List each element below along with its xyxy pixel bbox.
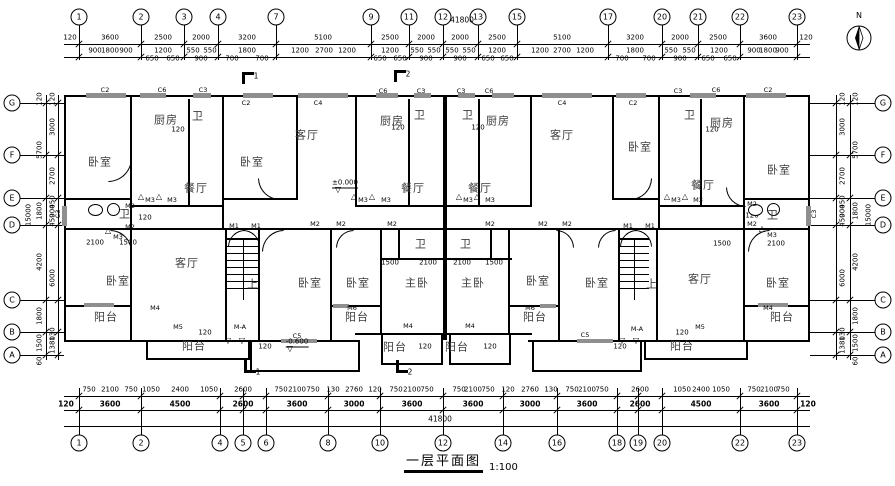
- dim-label: 2100: [578, 387, 596, 394]
- window: [540, 304, 556, 308]
- room-label: 餐厅: [184, 183, 208, 194]
- door-triangle-icon: ▽: [239, 337, 245, 345]
- dim-label: 120: [171, 127, 184, 134]
- room-label: 卫: [767, 210, 779, 221]
- section-mark-label: 2: [408, 368, 413, 376]
- axis-bubble: 10: [372, 435, 389, 452]
- axis-bubble: B: [875, 324, 892, 341]
- room-label: 卫: [415, 239, 427, 250]
- door-triangle-icon: △: [664, 193, 670, 201]
- dim-label: 5100: [553, 35, 571, 42]
- wall: [660, 205, 744, 207]
- dim-label: 900: [775, 48, 788, 55]
- dim-label: 550: [445, 48, 458, 55]
- window: [577, 339, 613, 343]
- stairs-rail: [634, 238, 635, 300]
- dim-label: 1800: [37, 202, 44, 220]
- dim-label: 120: [63, 35, 76, 42]
- dim-label: 2000: [451, 35, 469, 42]
- dim-label: 1800: [101, 48, 119, 55]
- dim-label: 1800: [238, 48, 256, 55]
- dim-label: 120: [138, 215, 151, 222]
- door-window-code: C2: [764, 87, 773, 94]
- door-window-code: M1: [645, 223, 655, 230]
- dim-label: 1800: [759, 48, 777, 55]
- dim-label: 900: [119, 48, 132, 55]
- dim-label: 120: [675, 330, 688, 337]
- dim-label: 750: [776, 387, 789, 394]
- dim-label: 2700: [840, 167, 847, 185]
- window: [243, 93, 273, 98]
- dim-label: 2000: [417, 35, 435, 42]
- dim-label: 120: [799, 35, 812, 42]
- door-window-code: M-A: [631, 326, 643, 333]
- dim-label: 120: [418, 344, 431, 351]
- door-window-code: M2: [747, 221, 757, 228]
- dim-label: 2500: [381, 35, 399, 42]
- axis-bubble: A: [4, 347, 21, 364]
- room-label: 主卧: [405, 278, 429, 289]
- wall: [380, 258, 445, 260]
- door-arc: [556, 230, 574, 248]
- dim-label: 2400: [692, 387, 710, 394]
- axis-bubble: 21: [690, 9, 707, 26]
- axis-bubble: 22: [732, 435, 749, 452]
- wall: [330, 230, 332, 340]
- dim-label: 130: [326, 387, 339, 394]
- dim-label: 1200: [488, 48, 506, 55]
- dim-label: 1050: [673, 387, 691, 394]
- window: [542, 93, 592, 98]
- dim-label: 1200: [710, 48, 728, 55]
- dim-label: 120: [198, 330, 211, 337]
- section-mark: [244, 360, 247, 372]
- north-label: N: [856, 11, 862, 20]
- dim-label: 2100: [101, 387, 119, 394]
- room-label: 阳台: [383, 342, 407, 353]
- section-mark: [396, 360, 399, 372]
- dim-label: 60: [37, 357, 44, 366]
- room-label: 卧室: [240, 157, 264, 168]
- dim-label: 1800: [853, 202, 860, 220]
- dim-label: 4500: [170, 400, 191, 408]
- door-window-code: C3: [457, 88, 466, 95]
- door-triangle-icon: ▽: [633, 337, 639, 345]
- door-window-code: C3: [811, 210, 818, 219]
- dim-label: 650: [723, 56, 736, 63]
- room-label: 卫: [460, 239, 472, 250]
- door-triangle-icon: △: [138, 193, 144, 201]
- door-window-code: M3: [693, 197, 703, 204]
- dim-line: [46, 95, 47, 360]
- dim-label: 2500: [709, 35, 727, 42]
- wall: [250, 340, 252, 372]
- dim-label: 750: [306, 387, 319, 394]
- wall: [380, 230, 382, 333]
- window: [492, 93, 514, 98]
- room-label: 卧室: [767, 165, 791, 176]
- door-window-code: M3: [381, 197, 391, 204]
- room-label: 阳台: [770, 312, 794, 323]
- dim-label: 550: [664, 48, 677, 55]
- door-window-code: M3: [671, 197, 681, 204]
- door-window-code: M3: [113, 234, 123, 241]
- door-arc: [258, 178, 280, 200]
- dim-label: 900: [453, 56, 466, 63]
- axis-bubble: F: [875, 147, 892, 164]
- wall: [358, 340, 360, 372]
- room-label: 餐厅: [401, 183, 425, 194]
- axis-bubble: 23: [789, 435, 806, 452]
- dim-label: 1800: [853, 307, 860, 325]
- dim-label: 120: [800, 400, 816, 408]
- dim-label: 2700: [315, 48, 333, 55]
- axis-bubble: 18: [609, 435, 626, 452]
- wall: [508, 230, 510, 333]
- dim-label: 3600: [402, 400, 423, 408]
- dim-label: 1200: [338, 48, 356, 55]
- door-window-code: M2: [310, 221, 320, 228]
- section-mark-label: 1: [256, 368, 261, 376]
- room-label: 厨房: [380, 116, 404, 127]
- wall: [509, 333, 511, 365]
- dim-label: 4500: [691, 400, 712, 408]
- room-label: 客厅: [295, 130, 319, 141]
- axis-bubble: 8: [320, 435, 337, 452]
- dim-label: 2760: [345, 387, 363, 394]
- wall: [64, 198, 132, 200]
- wall: [490, 230, 492, 258]
- dim-label: 120: [840, 92, 847, 105]
- wall: [644, 358, 748, 360]
- dim-label: 120: [501, 387, 514, 394]
- dim-label: 2000: [192, 35, 210, 42]
- door-arc: [726, 187, 746, 207]
- dim-label: 2600: [234, 387, 252, 394]
- door-window-code: C3: [674, 88, 683, 95]
- dim-label: 650: [393, 56, 406, 63]
- dim-label: 750: [420, 387, 433, 394]
- dim-label: 2100: [403, 387, 421, 394]
- wall: [222, 198, 298, 200]
- door-window-code: M2: [387, 221, 397, 228]
- drawing-scale: 1:100: [489, 462, 518, 473]
- door-window-code: M6: [525, 305, 535, 312]
- door-window-code: C3: [417, 88, 426, 95]
- door-window-code: C4: [558, 100, 567, 107]
- dim-label: 5100: [314, 35, 332, 42]
- room-label: 厨房: [486, 116, 510, 127]
- door-triangle-icon: △: [105, 227, 111, 235]
- room-label: 客厅: [550, 130, 574, 141]
- wall: [357, 205, 531, 207]
- room-label: 卧室: [88, 157, 112, 168]
- door-triangle-icon: △: [369, 193, 375, 201]
- dim-label: 60: [853, 357, 860, 366]
- window: [84, 303, 114, 307]
- door-window-code: M3: [145, 197, 155, 204]
- axis-bubble: E: [875, 190, 892, 207]
- section-mark: [394, 70, 397, 82]
- room-label: 卫: [119, 209, 131, 220]
- window: [298, 93, 348, 98]
- room-label: 卧室: [526, 276, 550, 287]
- room-label: 阳台: [523, 312, 547, 323]
- axis-bubble: 16: [549, 435, 566, 452]
- wall: [146, 358, 250, 360]
- door-window-code: M4: [465, 323, 475, 330]
- door-arc: [336, 230, 354, 248]
- dim-label: 550: [203, 48, 216, 55]
- room-label: 卧室: [346, 278, 370, 289]
- dim-label: 650: [373, 56, 386, 63]
- axis-bubble: 6: [258, 435, 275, 452]
- door-window-code: M1: [229, 223, 239, 230]
- wall: [250, 370, 360, 372]
- dim-label: 120: [50, 92, 57, 105]
- window: [746, 93, 786, 98]
- section-mark-label: 1: [254, 72, 259, 80]
- dim-label: 3600: [100, 400, 121, 408]
- dim-label: 1500: [37, 334, 44, 352]
- wall: [296, 95, 298, 200]
- door-window-code: M6: [347, 305, 357, 312]
- door-window-code: M2: [125, 203, 135, 210]
- dim-label: 1200: [154, 48, 172, 55]
- axis-stem: [810, 155, 875, 156]
- door-window-code: C6: [485, 88, 494, 95]
- dim-label: 1380: [840, 336, 847, 354]
- axis-bubble: 12: [435, 435, 452, 452]
- dim-label: 650: [481, 56, 494, 63]
- room-label: 卧室: [628, 142, 652, 153]
- dim-label: 2600: [630, 400, 651, 408]
- dim-line: [64, 410, 810, 411]
- axis-bubble: C: [875, 292, 892, 309]
- wall: [644, 340, 646, 360]
- room-label: 卫: [414, 110, 426, 121]
- door-window-code: M-A: [234, 324, 246, 331]
- dim-label: 1500: [485, 260, 503, 267]
- wall: [528, 340, 810, 342]
- dim-label: 750: [747, 387, 760, 394]
- room-label: 卫: [684, 110, 696, 121]
- door-window-code: C2: [101, 87, 110, 94]
- dim-label: 2400: [171, 387, 189, 394]
- door-window-code: M3: [485, 197, 495, 204]
- window: [616, 93, 646, 98]
- dim-label: 3000: [50, 118, 57, 136]
- wall: [398, 230, 400, 258]
- axis-bubble: D: [875, 217, 892, 234]
- dim-label: 650: [145, 56, 158, 63]
- dim-label: 2100: [760, 387, 778, 394]
- wall: [658, 95, 660, 230]
- axis-bubble: 23: [789, 9, 806, 26]
- wall: [381, 363, 443, 365]
- axis-bubble: 5: [235, 435, 252, 452]
- section-mark: [242, 72, 245, 84]
- dim-label: 1200: [291, 48, 309, 55]
- dim-label: 120: [368, 387, 381, 394]
- wall: [530, 95, 532, 207]
- dim-label: 750: [389, 387, 402, 394]
- axis-bubble: B: [4, 324, 21, 341]
- dim-label: 2500: [154, 35, 172, 42]
- room-label: 主卧: [461, 278, 485, 289]
- room-label: 阳台: [670, 341, 694, 352]
- level-mark: ±0.000: [332, 180, 358, 189]
- axis-bubble: 11: [401, 9, 418, 26]
- dim-label: 1800: [626, 48, 644, 55]
- dim-label: 700: [642, 56, 655, 63]
- dim-label: 550: [427, 48, 440, 55]
- room-label: 卧室: [106, 276, 130, 287]
- axis-bubble: 4: [210, 9, 227, 26]
- dim-line: [64, 396, 810, 397]
- axis-bubble: 19: [630, 435, 647, 452]
- dim-label: 450: [840, 213, 847, 226]
- dim-label: 1500: [713, 241, 731, 248]
- door-window-code: M2: [485, 221, 495, 228]
- room-label: 客厅: [688, 274, 712, 285]
- dim-label: 3600: [577, 400, 598, 408]
- door-window-code: C6: [158, 87, 167, 94]
- dim-label: 1800: [37, 307, 44, 325]
- dim-label: 900: [194, 56, 207, 63]
- dim-label: 3200: [626, 35, 644, 42]
- wall: [222, 95, 224, 230]
- dim-label: 2100: [288, 387, 306, 394]
- total-dim-label: 15000: [26, 204, 33, 226]
- dim-label: 750: [82, 387, 95, 394]
- stairs-rail: [243, 238, 244, 300]
- axis-bubble: 3: [176, 9, 193, 26]
- door-window-code: M3: [167, 197, 177, 204]
- room-label: 餐厅: [691, 180, 715, 191]
- dim-label: 1500: [853, 334, 860, 352]
- wall: [132, 205, 224, 207]
- wall: [443, 95, 447, 340]
- dim-label: 130: [544, 387, 557, 394]
- dim-label: 750: [274, 387, 287, 394]
- room-label: 阳台: [182, 341, 206, 352]
- door-window-code: C4: [314, 100, 323, 107]
- total-dim-label: 41800: [428, 415, 452, 423]
- dim-label: 650: [500, 56, 513, 63]
- room-label: 厨房: [154, 115, 178, 126]
- door-arc: [630, 178, 652, 200]
- dim-label: 750: [565, 387, 578, 394]
- dim-label: 550: [462, 48, 475, 55]
- door-window-code: M3: [358, 197, 368, 204]
- dim-label: 1200: [381, 48, 399, 55]
- window: [62, 206, 67, 226]
- wall: [640, 340, 642, 372]
- dim-label: 3600: [463, 400, 484, 408]
- fixture: [88, 204, 103, 216]
- total-dim-label: 41800: [450, 16, 474, 24]
- dim-label: 700: [225, 56, 238, 63]
- axis-stem: [810, 300, 875, 301]
- axis-bubble: 12: [435, 9, 452, 26]
- door-window-code: C6: [712, 87, 721, 94]
- dim-label: 2100: [419, 260, 437, 267]
- dim-line: [836, 95, 837, 360]
- wall: [355, 95, 357, 207]
- wall: [146, 340, 148, 360]
- dim-label: 650: [701, 56, 714, 63]
- drawing-title-block: 一层平面图 1:100: [404, 450, 518, 473]
- room-label: 上: [247, 279, 259, 290]
- dim-line: [64, 426, 810, 427]
- room-label: 上: [646, 279, 658, 290]
- dim-label: 700: [255, 56, 268, 63]
- window: [690, 93, 716, 98]
- wall: [746, 340, 748, 360]
- door-window-code: M5: [695, 324, 705, 331]
- dim-label: 3000: [840, 118, 847, 136]
- dim-label: 2100: [464, 387, 482, 394]
- axis-bubble: 22: [732, 9, 749, 26]
- axis-bubble: G: [875, 95, 892, 112]
- section-mark-label: 2: [406, 70, 411, 78]
- axis-bubble: 20: [654, 435, 671, 452]
- dim-label: 2000: [671, 35, 689, 42]
- axis-bubble: C: [4, 292, 21, 309]
- axis-bubble: D: [4, 217, 21, 234]
- axis-bubble: G: [4, 95, 21, 112]
- north-arrow-icon: [844, 23, 874, 53]
- dim-label: 120: [258, 344, 271, 351]
- dim-label: 3200: [238, 35, 256, 42]
- axis-bubble: 14: [495, 435, 512, 452]
- dim-label: 2760: [521, 387, 539, 394]
- room-label: 卧室: [766, 278, 790, 289]
- dim-label: 3000: [344, 400, 365, 408]
- room-label: 餐厅: [468, 183, 492, 194]
- room-label: 客厅: [175, 258, 199, 269]
- axis-bubble: 2: [133, 435, 150, 452]
- door-window-code: M5: [173, 324, 183, 331]
- axis-bubble: 2: [133, 9, 150, 26]
- dim-label: 6000: [50, 269, 57, 287]
- window: [193, 93, 211, 98]
- door-triangle-icon: △: [759, 225, 765, 233]
- north-compass: N: [844, 23, 874, 57]
- floor-plan-canvas: 一层平面图 1:100 N 12347911121315172021222312…: [0, 0, 895, 486]
- door-window-code: M4: [763, 305, 773, 312]
- door-window-code: C3: [55, 210, 62, 219]
- door-window-code: C2: [629, 100, 638, 107]
- dim-label: 120: [483, 344, 496, 351]
- wall: [532, 340, 534, 372]
- door-triangle-icon: △: [351, 193, 357, 201]
- room-label: 卫: [462, 110, 474, 121]
- door-window-code: M1: [623, 223, 633, 230]
- axis-bubble: F: [4, 147, 21, 164]
- dim-label: 1050: [712, 387, 730, 394]
- door-window-code: M2: [538, 221, 548, 228]
- dim-label: 2700: [553, 48, 571, 55]
- door-triangle-icon: △: [456, 193, 462, 201]
- axis-bubble: 1: [71, 435, 88, 452]
- dim-label: 1500: [381, 260, 399, 267]
- dim-label: 120: [37, 92, 44, 105]
- axis-bubble: 4: [212, 435, 229, 452]
- door-window-code: C6: [379, 88, 388, 95]
- room-label: 厨房: [710, 118, 734, 129]
